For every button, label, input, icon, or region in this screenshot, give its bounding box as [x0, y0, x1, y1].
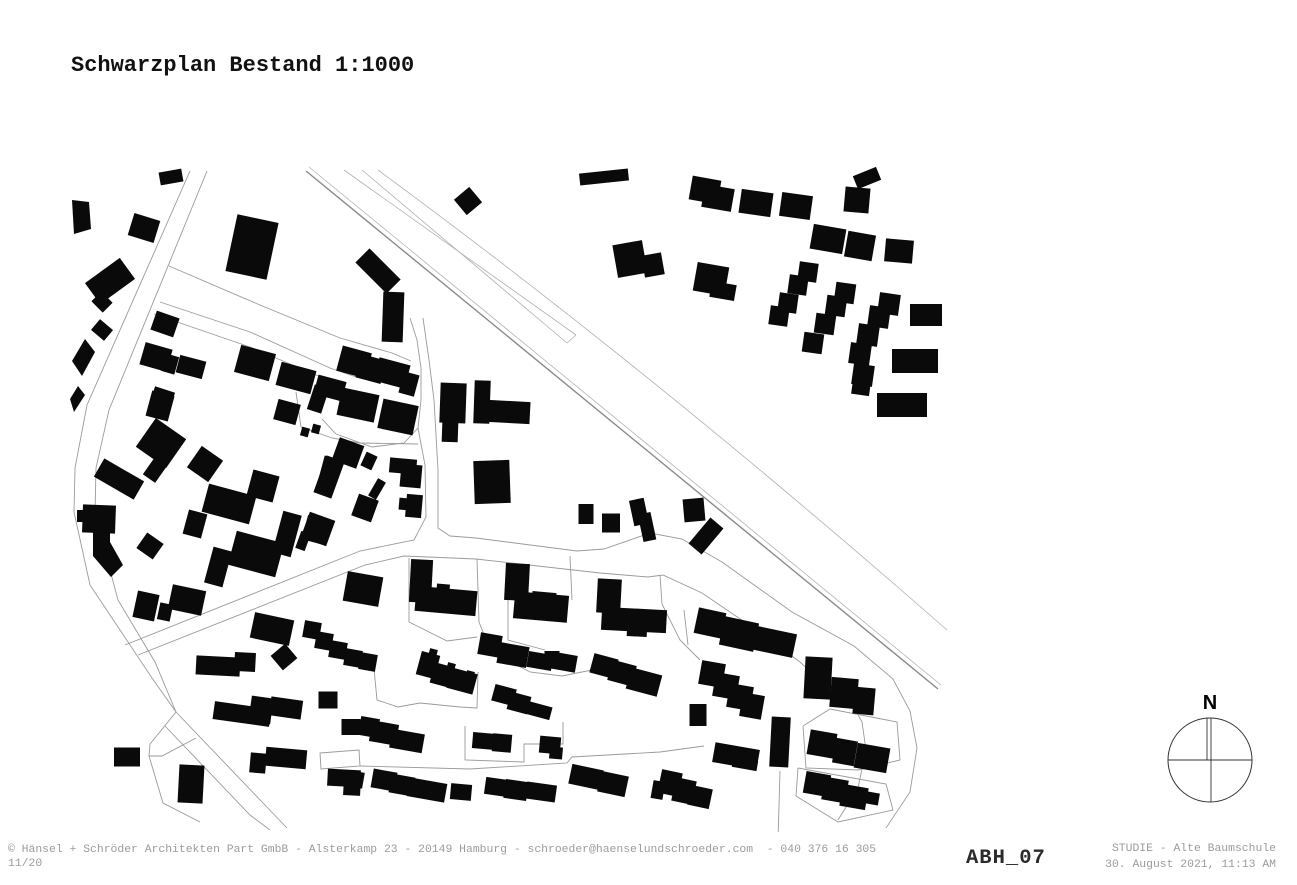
svg-text:30. August 2021, 11:13 AM: 30. August 2021, 11:13 AM	[1105, 859, 1276, 871]
svg-text:© Hänsel + Schröder Architekte: © Hänsel + Schröder Architekten Part Gmb…	[8, 844, 876, 856]
svg-text:11/20: 11/20	[8, 858, 42, 870]
svg-text:N: N	[1203, 692, 1217, 714]
svg-text:ABH_07: ABH_07	[966, 847, 1046, 870]
svg-text:Schwarzplan Bestand 1:1000: Schwarzplan Bestand 1:1000	[71, 53, 414, 78]
svg-text:STUDIE - Alte Baumschule: STUDIE - Alte Baumschule	[1112, 843, 1276, 855]
